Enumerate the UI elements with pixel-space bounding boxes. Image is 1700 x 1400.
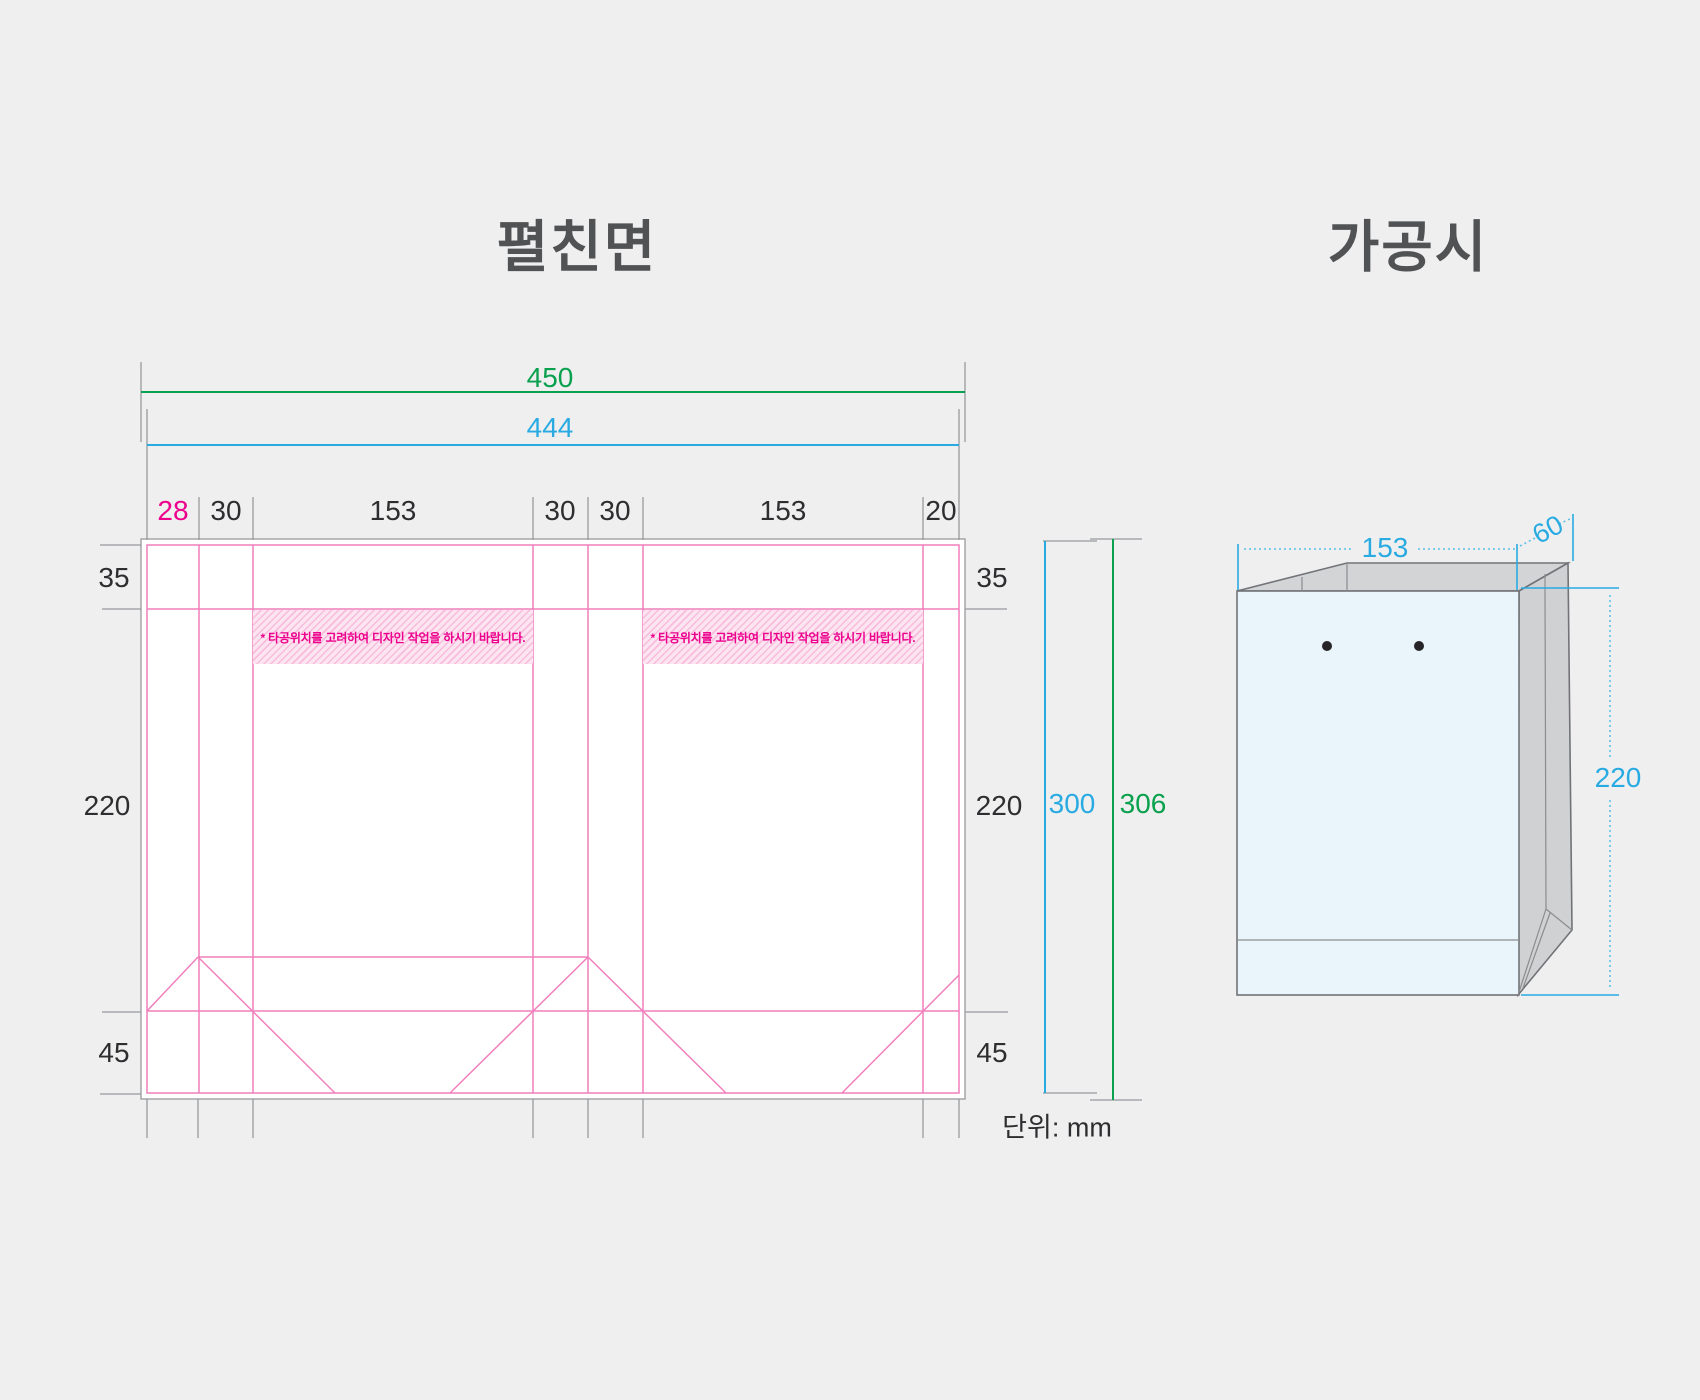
dim-row-middle-left: 220 xyxy=(84,792,131,820)
bag-dim-width: 153 xyxy=(1362,534,1409,562)
dim-row-bottom-right: 45 xyxy=(976,1039,1007,1067)
dim-col-face-front: 153 xyxy=(370,497,417,525)
unit-note: 단위: mm xyxy=(1002,1115,1112,1142)
dim-row-top-right: 35 xyxy=(976,564,1007,592)
dim-col-face-back: 153 xyxy=(760,497,807,525)
bag-dim-height: 220 xyxy=(1595,764,1642,792)
dieline-sheet: 펼친면 가공시 * 타공위치를 고려하여 디자인 작업을 하시기 바랍니다. *… xyxy=(0,0,1700,1400)
dim-col-gusset-mid-left: 30 xyxy=(544,497,575,525)
dim-row-top-left: 35 xyxy=(98,564,129,592)
assembled-view-title: 가공시 xyxy=(1328,203,1489,284)
punch-hole-left xyxy=(1322,641,1332,651)
dim-col-edge: 20 xyxy=(925,497,956,525)
assembled-bag xyxy=(1237,514,1619,995)
dim-row-bottom-left: 45 xyxy=(98,1039,129,1067)
dim-row-middle-right: 220 xyxy=(976,792,1023,820)
dim-height-trim: 300 xyxy=(1049,790,1096,818)
punch-warning-band-front: * 타공위치를 고려하여 디자인 작업을 하시기 바랍니다. xyxy=(253,610,533,664)
dim-height-bleed: 306 xyxy=(1120,790,1167,818)
dim-width-trim: 444 xyxy=(527,414,574,442)
flat-view-title: 펼친면 xyxy=(497,203,658,284)
dim-col-gusset-left: 30 xyxy=(210,497,241,525)
dim-col-glue: 28 xyxy=(157,497,188,525)
punch-hole-right xyxy=(1414,641,1424,651)
punch-warning-text: * 타공위치를 고려하여 디자인 작업을 하시기 바랍니다. xyxy=(651,629,916,646)
flat-dieline xyxy=(100,362,1142,1138)
dim-col-gusset-mid-right: 30 xyxy=(599,497,630,525)
punch-warning-band-back: * 타공위치를 고려하여 디자인 작업을 하시기 바랍니다. xyxy=(643,610,923,664)
dim-width-bleed: 450 xyxy=(527,364,574,392)
punch-warning-text: * 타공위치를 고려하여 디자인 작업을 하시기 바랍니다. xyxy=(261,629,526,646)
